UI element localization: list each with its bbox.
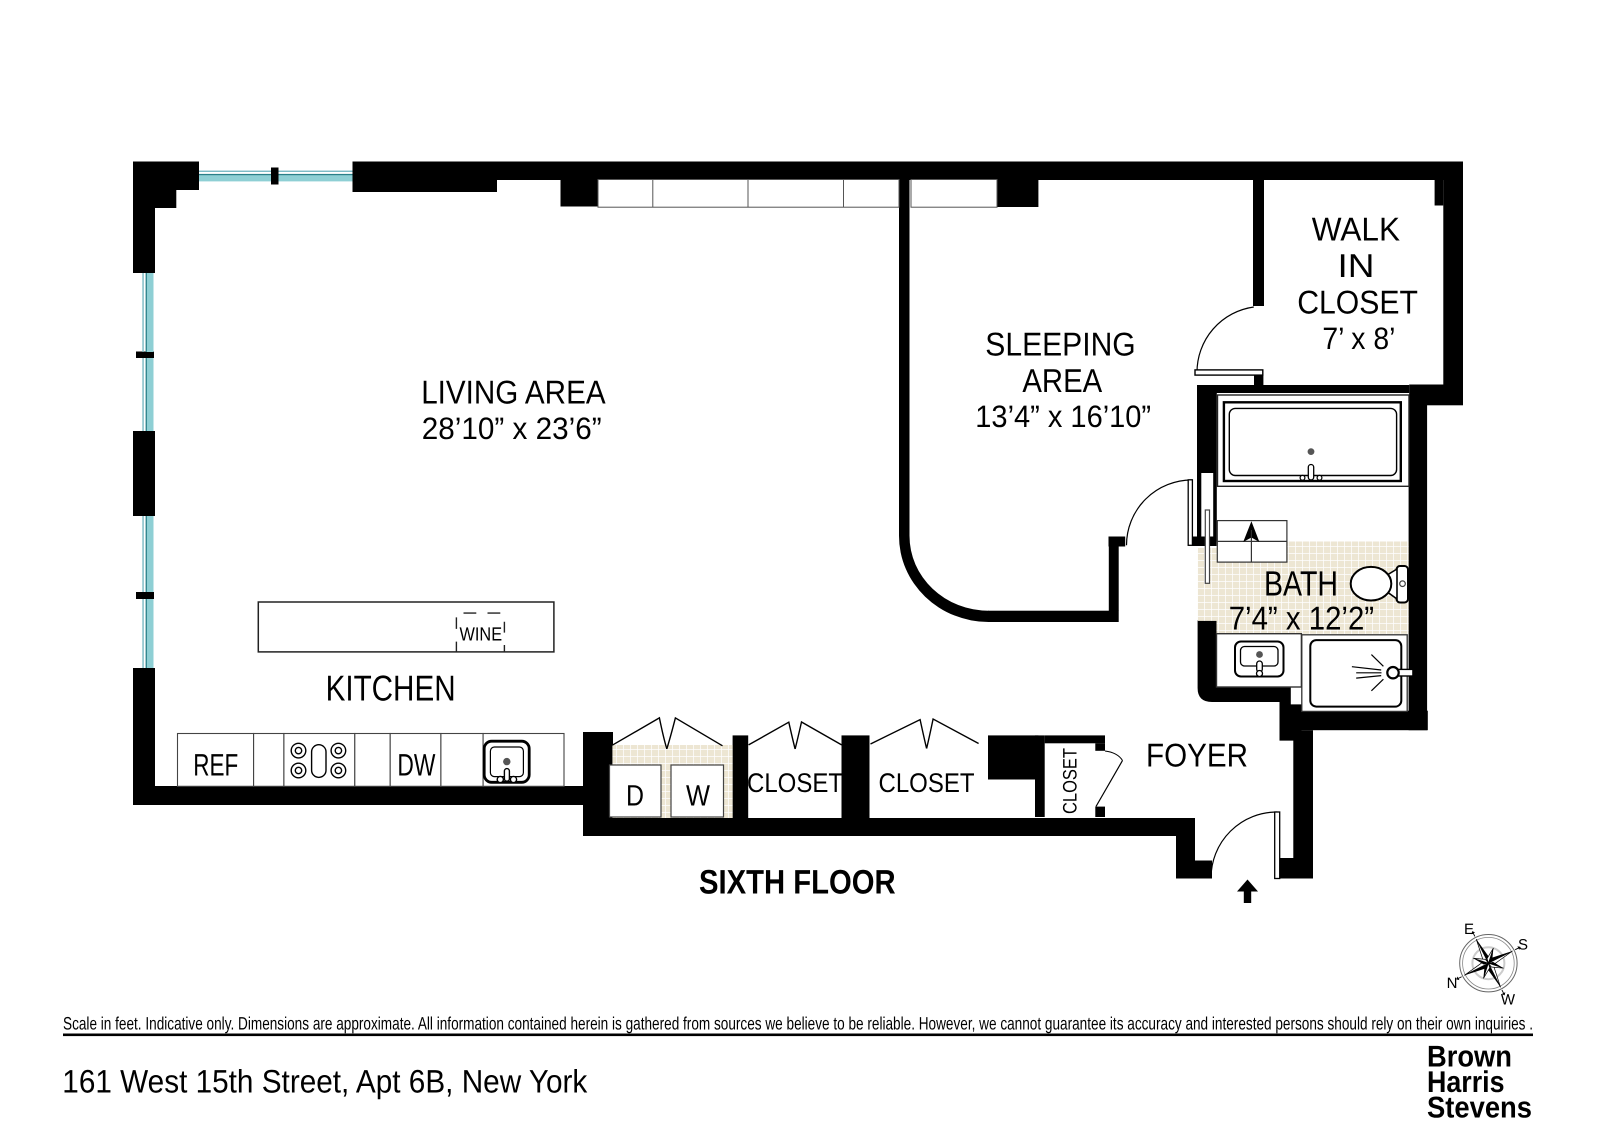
- svg-text:CLOSET: CLOSET: [1060, 748, 1082, 814]
- svg-text:CLOSET: CLOSET: [1297, 284, 1418, 321]
- svg-text:DW: DW: [397, 748, 436, 783]
- svg-text:Stevens: Stevens: [1427, 1092, 1532, 1125]
- svg-text:13’4” x 16’10”: 13’4” x 16’10”: [975, 399, 1151, 434]
- svg-text:S: S: [1518, 937, 1528, 954]
- svg-text:SLEEPING: SLEEPING: [985, 325, 1135, 362]
- svg-text:LIVING AREA: LIVING AREA: [421, 374, 605, 411]
- svg-text:Scale in feet. Indicative only: Scale in feet. Indicative only. Dimensio…: [63, 1014, 1533, 1034]
- svg-text:161 West 15th Street, Apt 6B,: 161 West 15th Street, Apt 6B, New York: [62, 1063, 588, 1099]
- svg-text:FOYER: FOYER: [1146, 737, 1248, 774]
- svg-text:WALK: WALK: [1312, 211, 1400, 248]
- svg-text:CLOSET: CLOSET: [747, 768, 843, 798]
- svg-text:BATH: BATH: [1264, 565, 1338, 604]
- svg-text:WINE: WINE: [460, 625, 503, 646]
- svg-text:28’10” x 23’6”: 28’10” x 23’6”: [422, 411, 602, 446]
- svg-text:REF: REF: [193, 748, 238, 783]
- svg-text:AREA: AREA: [1022, 362, 1102, 399]
- svg-text:D: D: [626, 780, 644, 813]
- svg-text:N: N: [1447, 975, 1458, 992]
- svg-text:7’ x 8’: 7’ x 8’: [1322, 321, 1395, 356]
- svg-text:7’4” x 12’2”: 7’4” x 12’2”: [1229, 600, 1374, 637]
- svg-text:SIXTH FLOOR: SIXTH FLOOR: [699, 864, 896, 902]
- svg-text:IN: IN: [1338, 247, 1375, 284]
- svg-text:W: W: [1501, 992, 1516, 1009]
- svg-text:CLOSET: CLOSET: [879, 768, 975, 798]
- svg-text:E: E: [1464, 921, 1474, 938]
- svg-text:KITCHEN: KITCHEN: [326, 668, 456, 709]
- svg-text:W: W: [686, 780, 710, 813]
